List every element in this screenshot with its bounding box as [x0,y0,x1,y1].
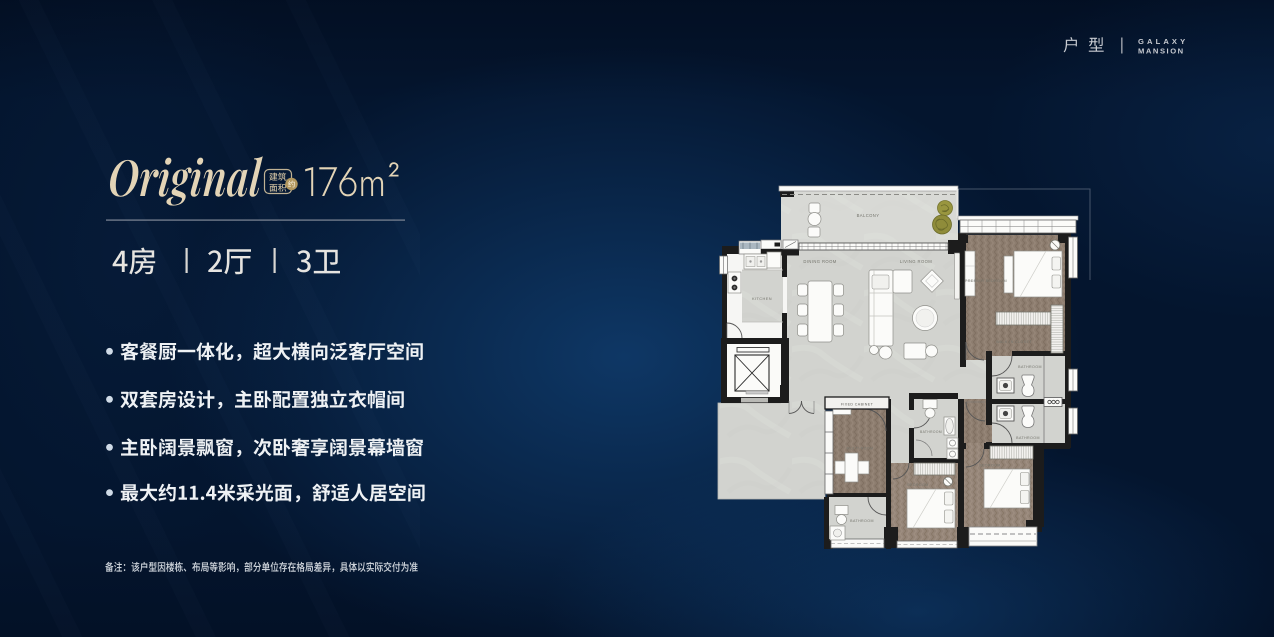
svg-text:PREMIER BEDROOM: PREMIER BEDROOM [965,279,1007,283]
svg-text:MULTI-ROOM: MULTI-ROOM [847,447,874,451]
svg-text:BALCONY: BALCONY [857,213,880,218]
svg-text:KITCHEN: KITCHEN [752,296,772,301]
svg-text:MANSION: MANSION [1138,47,1185,56]
svg-text:FIXED CABINET: FIXED CABINET [841,403,874,407]
svg-text:BEDROOM: BEDROOM [979,464,1000,468]
svg-text:GALAXY: GALAXY [1138,37,1188,46]
svg-text:BATHROOM: BATHROOM [850,519,874,523]
svg-text:BATHROOM: BATHROOM [1018,365,1042,369]
svg-text:BATHROOM: BATHROOM [1016,436,1040,440]
svg-text:BEDROOM: BEDROOM [907,483,928,487]
svg-text:LIVING ROOM: LIVING ROOM [900,259,932,264]
svg-text:DINING ROOM: DINING ROOM [803,259,836,264]
svg-text:WALK-IN CLOSET: WALK-IN CLOSET [996,340,1032,344]
svg-text:BATHROOM: BATHROOM [920,430,942,434]
